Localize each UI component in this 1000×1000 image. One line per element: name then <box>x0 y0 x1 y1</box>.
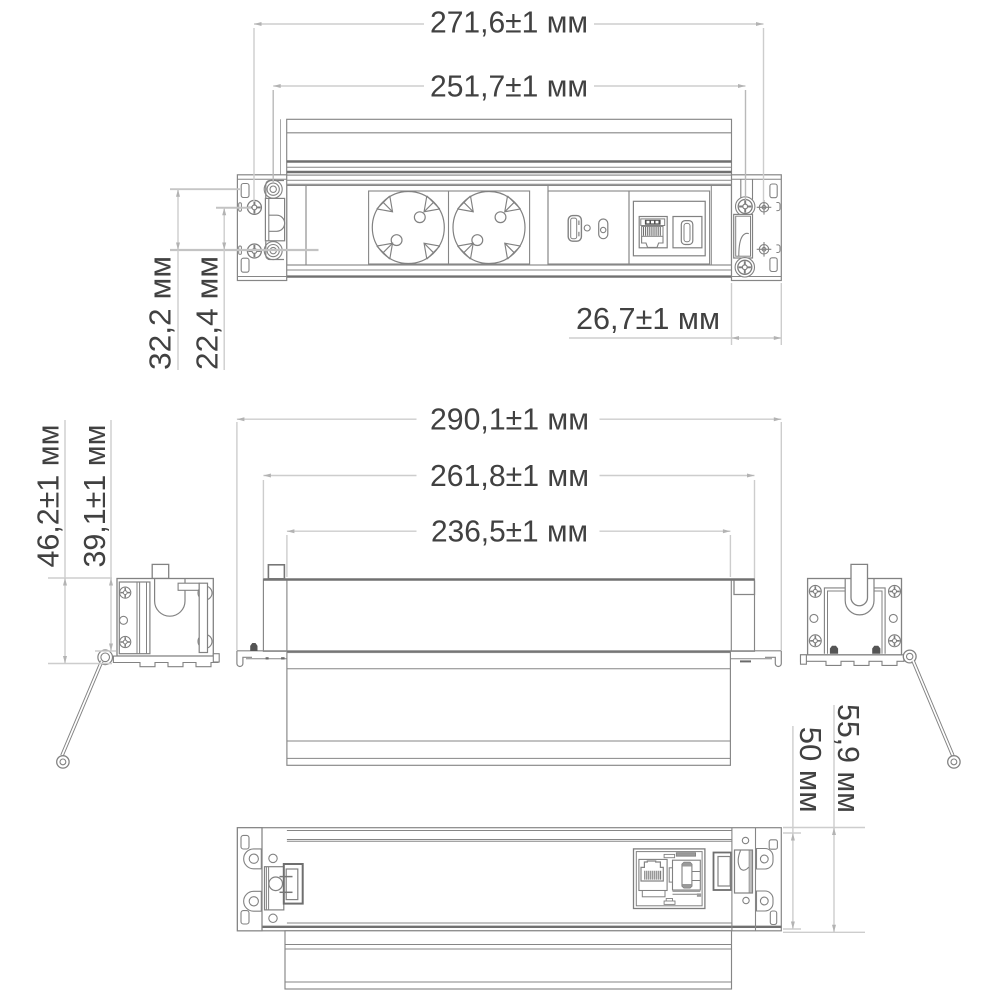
svg-text:290,1±1 мм: 290,1±1 мм <box>430 403 589 437</box>
svg-text:39,1±1 мм: 39,1±1 мм <box>78 425 112 568</box>
svg-text:22,4 мм: 22,4 мм <box>191 256 225 370</box>
svg-text:50 мм: 50 мм <box>793 727 827 813</box>
svg-text:251,7±1 мм: 251,7±1 мм <box>430 70 588 104</box>
svg-text:261,8±1 мм: 261,8±1 мм <box>430 459 589 493</box>
svg-text:271,6±1 мм: 271,6±1 мм <box>430 6 588 40</box>
svg-text:55,9 мм: 55,9 мм <box>831 704 865 813</box>
svg-text:26,7±1 мм: 26,7±1 мм <box>576 302 720 336</box>
svg-text:46,2±1 мм: 46,2±1 мм <box>32 425 66 568</box>
svg-text:236,5±1 мм: 236,5±1 мм <box>431 515 588 549</box>
svg-text:32,2 мм: 32,2 мм <box>144 256 178 370</box>
